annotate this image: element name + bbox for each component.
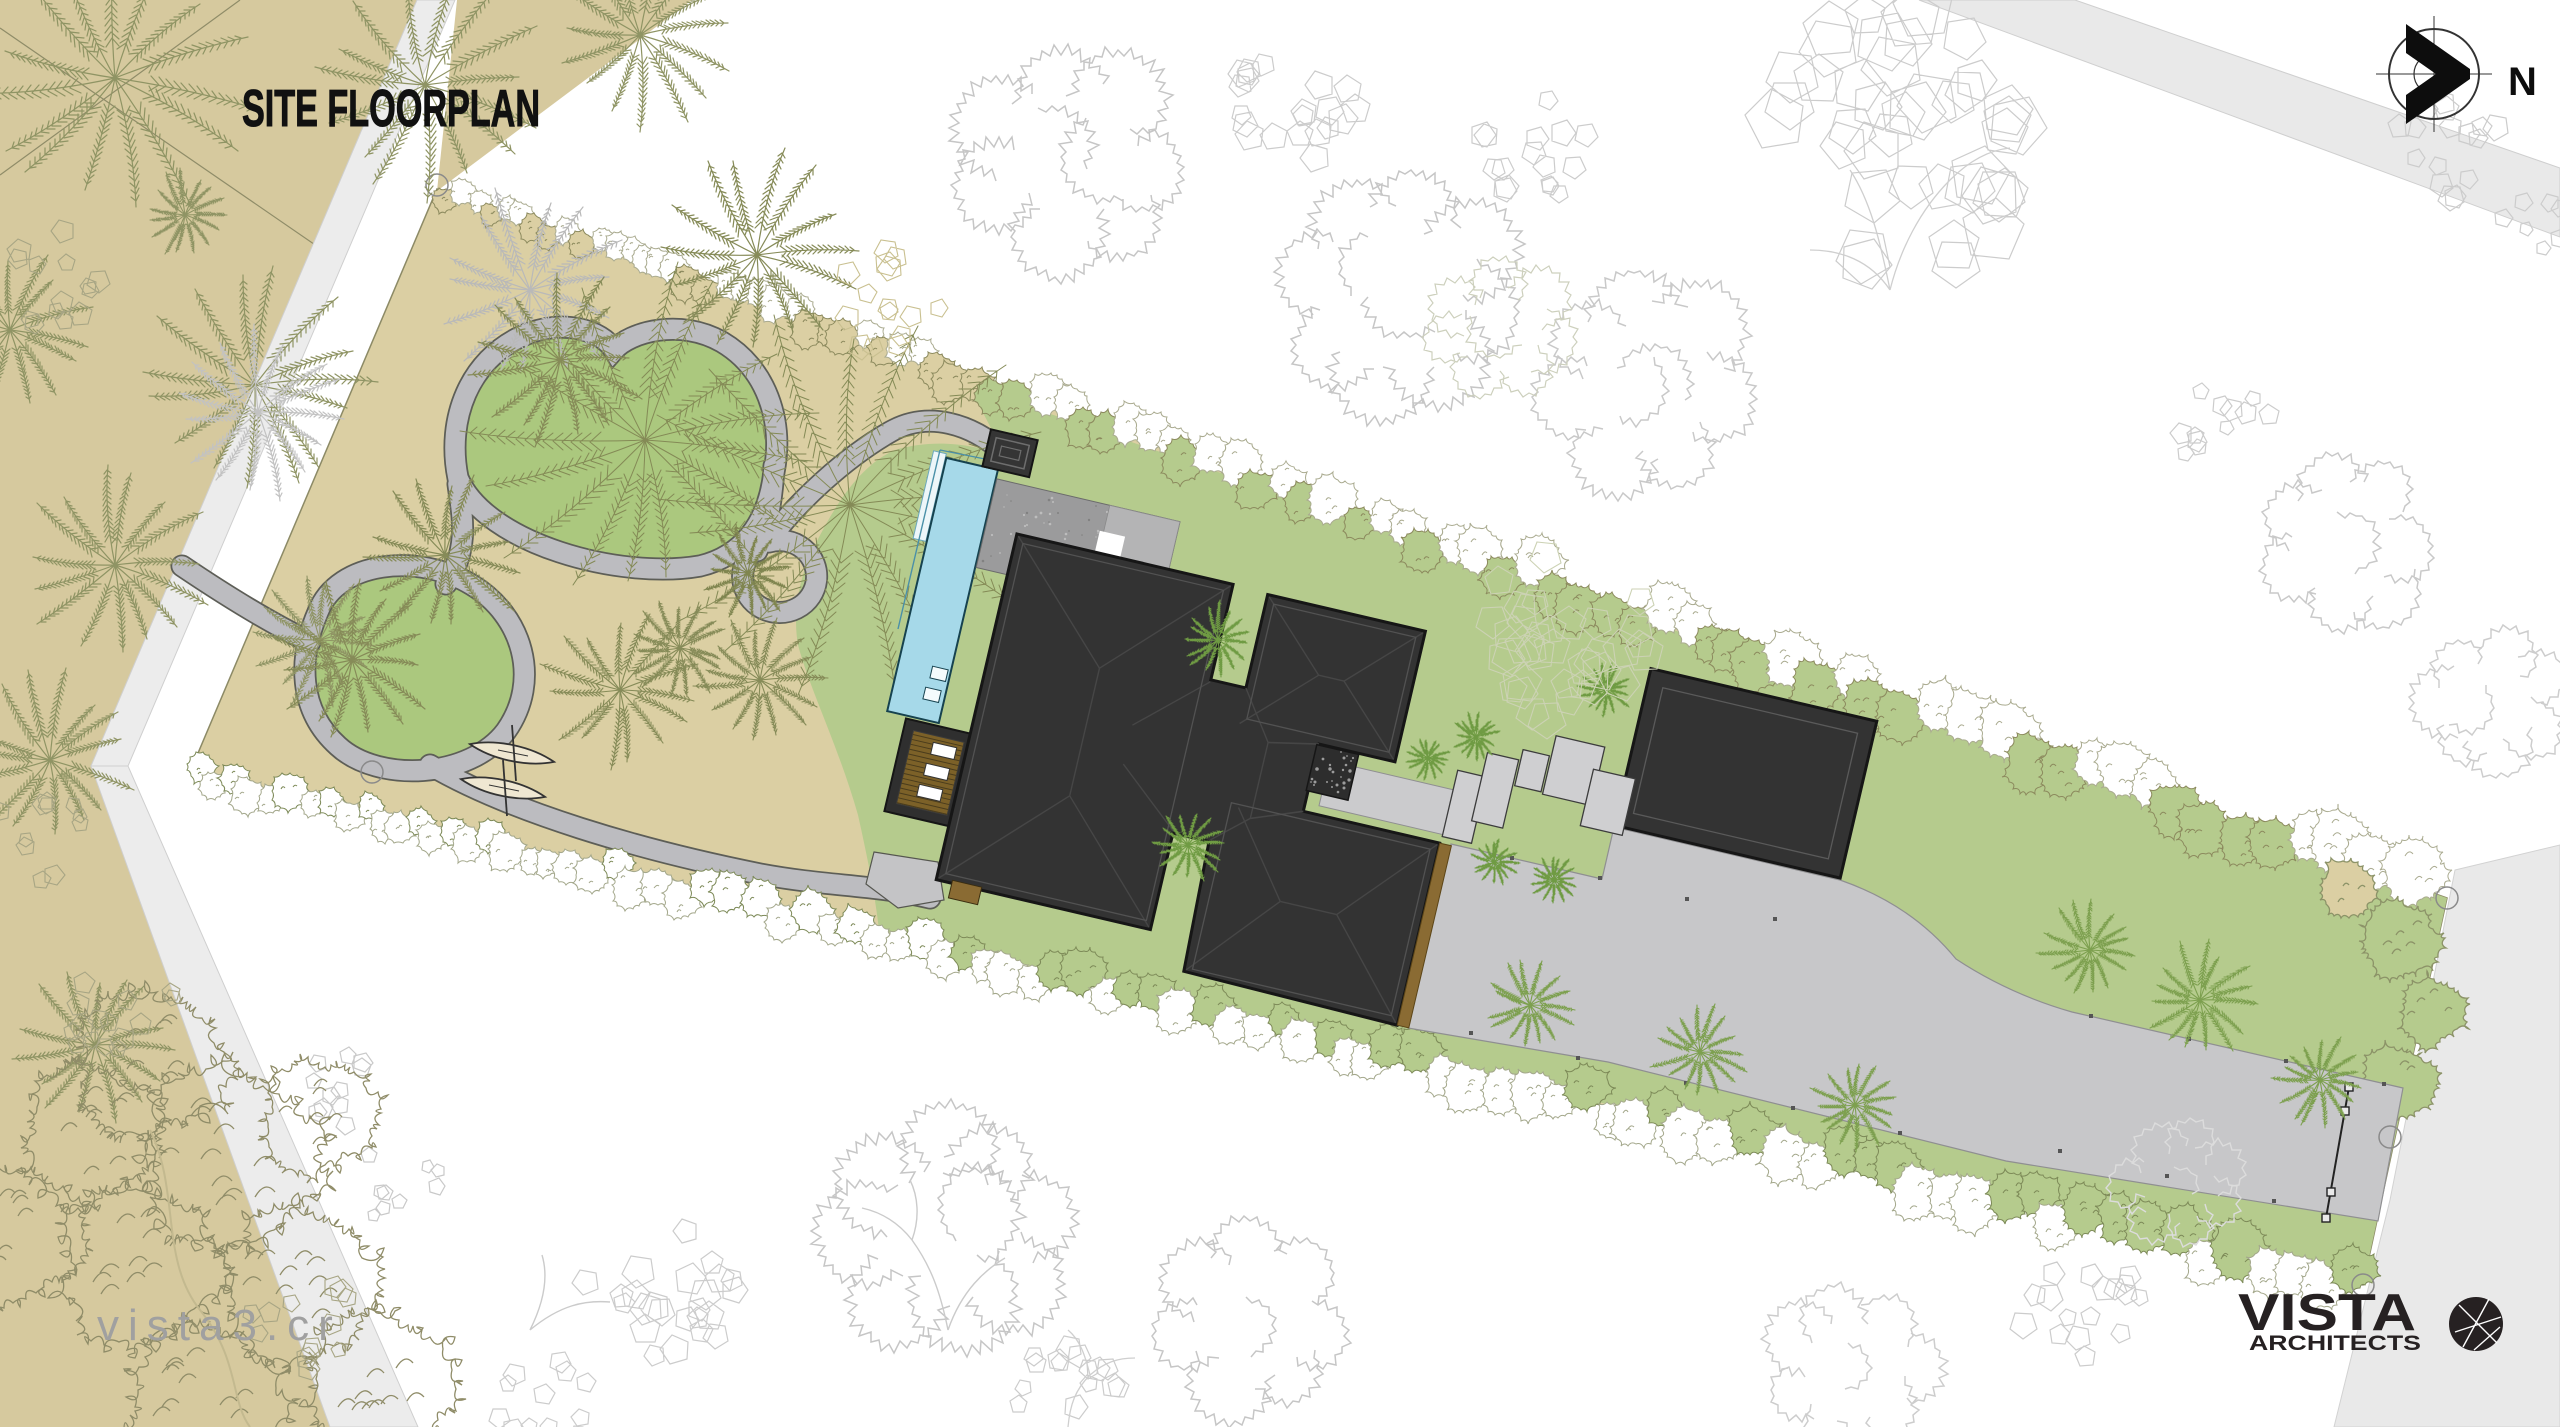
svg-text:vista3.cr: vista3.cr <box>97 1301 342 1350</box>
svg-text:SITE FLOORPLAN: SITE FLOORPLAN <box>242 80 540 138</box>
svg-text:ARCHITECTS: ARCHITECTS <box>2249 1332 2421 1355</box>
svg-text:N: N <box>2508 60 2537 104</box>
